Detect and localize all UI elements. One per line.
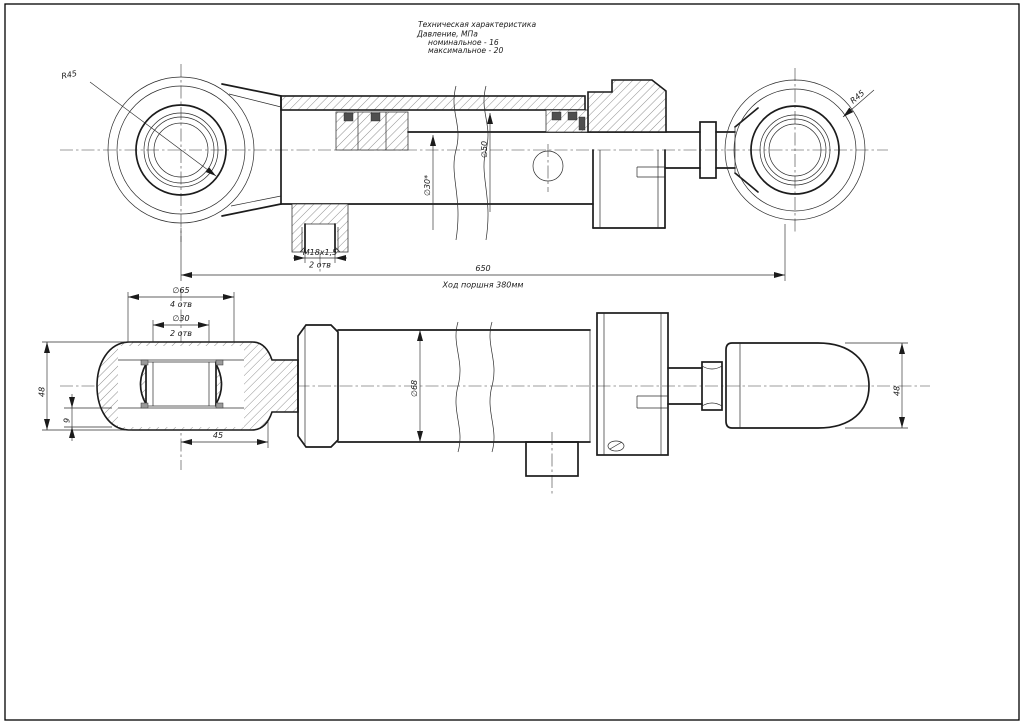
- drawing-sheet: Техническая характеристика Давление, МПа…: [0, 0, 1024, 724]
- title-block: Техническая характеристика Давление, МПа…: [416, 20, 536, 55]
- break-line: [490, 322, 494, 452]
- dim-bore-holes: 2 отв: [170, 329, 192, 338]
- note-piston-stroke: Ход поршня 380мм: [442, 281, 524, 290]
- dim-bore-dia-section: ∅30: [172, 314, 189, 323]
- dim-plate-thickness: 9: [63, 418, 72, 423]
- spec-maximal: максимальное - 20: [428, 46, 503, 55]
- dim-tube-dia: ∅68: [410, 380, 419, 397]
- rod-and-eye-edge: [668, 343, 869, 428]
- dim-eye-width-right: 48: [893, 386, 902, 396]
- dim-right-eye-radius: R45: [849, 89, 867, 106]
- dim-eye-offset: 45: [213, 431, 223, 440]
- tube-wall-section: [281, 96, 585, 110]
- dim-housing-holes: 4 отв: [170, 300, 192, 309]
- dim-port-holes: 2 отв: [309, 261, 331, 270]
- eye-section: [97, 342, 298, 430]
- dim-rod-dia: ∅30*: [423, 175, 432, 196]
- dim-bore-dia: ∅50: [480, 141, 489, 158]
- drawing-canvas: Техническая характеристика Давление, МПа…: [0, 0, 1024, 724]
- spec-title: Техническая характеристика: [418, 20, 536, 29]
- dim-housing-dia: ∅65: [172, 286, 189, 295]
- rod-seal: [552, 112, 561, 120]
- piston-seal: [344, 113, 353, 121]
- eye-edge-outline: [726, 343, 869, 428]
- rod-wiper: [579, 117, 585, 130]
- break-line: [456, 322, 460, 452]
- dim-eye-width-left: 48: [38, 387, 47, 397]
- front-view: R45 R45 ∅30* ∅50 М18х1,5 2 отв 650 Ход п…: [60, 64, 888, 290]
- tube-exterior: [338, 322, 590, 476]
- port-boss: [292, 204, 348, 252]
- dim-overall-length: 650: [475, 264, 490, 273]
- rod-seal: [568, 112, 577, 120]
- head-cap-section: [588, 80, 666, 132]
- section-view: ∅65 4 отв ∅30 2 отв ∅68 45 48: [38, 286, 931, 496]
- gland-nut: [597, 313, 668, 455]
- dim-port-thread: М18х1,5: [303, 248, 338, 257]
- piston-seal: [371, 113, 380, 121]
- dim-left-eye-radius: R45: [61, 69, 78, 81]
